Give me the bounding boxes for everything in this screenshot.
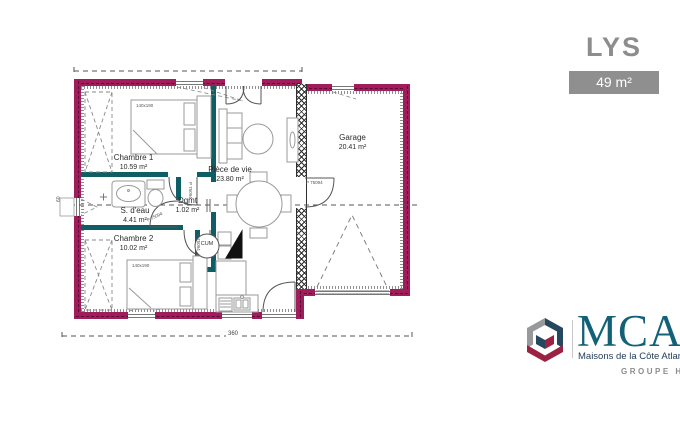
door-garage-house-opening	[295, 177, 306, 208]
window-sdeau	[74, 198, 81, 216]
insulation-garage-right	[400, 91, 403, 289]
room-name: Garage	[315, 133, 390, 143]
wall-chambre2-top-a	[81, 225, 183, 230]
page-canvas: LYS 49 m²	[0, 0, 680, 425]
washbasin	[112, 181, 145, 207]
garage-door	[316, 215, 389, 294]
window-chambre2	[128, 312, 155, 319]
dimension-lines	[62, 67, 418, 340]
door-ref-chambre2: P 75094	[196, 234, 201, 251]
logo-divider	[572, 320, 573, 358]
logo-tagline-text: Maisons de la Côte Atlantique	[578, 351, 680, 362]
window-chambre1	[176, 79, 203, 86]
bed-size-label-ch1: 140x190	[136, 103, 153, 108]
window-garage	[332, 84, 354, 91]
wall-garage-top	[302, 84, 410, 91]
door-ref-chambre1: P 75094	[188, 182, 193, 199]
insulation-garage-top	[305, 91, 403, 94]
room-label-garage: Garage 20.41 m²	[315, 133, 390, 152]
door-ref-garage: P 75094	[306, 180, 323, 185]
room-area: 10.59 m²	[96, 163, 171, 172]
toilet	[147, 180, 164, 207]
dimension-bottom: 360	[226, 331, 240, 337]
plan-title: LYS	[569, 32, 659, 63]
wall-chambre1-bottom-a	[81, 172, 168, 177]
room-area: 20.41 m²	[315, 143, 390, 152]
window-sill-box	[60, 198, 74, 216]
wall-kitchen	[211, 228, 216, 272]
window-swings	[81, 87, 356, 311]
room-label-piece-de-vie: Pièce de vie 23.80 m²	[190, 165, 270, 184]
wall-dgmt-living-b	[211, 212, 216, 228]
insulation-left	[81, 86, 84, 312]
mca-cube-icon	[521, 316, 569, 364]
coffee-table	[243, 124, 273, 154]
room-area: 4.41 m²	[100, 216, 170, 225]
window-kitchen	[222, 312, 252, 319]
dimension-left-window: 60	[56, 196, 62, 202]
room-area: 23.80 m²	[190, 175, 270, 184]
room-name: Chambre 2	[96, 234, 171, 244]
room-name: Chambre 1	[96, 153, 171, 163]
kitchen-counter	[216, 232, 258, 312]
technical-duct	[226, 231, 242, 258]
room-name: Pièce de vie	[190, 165, 270, 175]
room-area: 10.02 m²	[96, 244, 171, 253]
logo-brand-text: MCA	[577, 309, 680, 354]
door-living-rear	[263, 282, 295, 312]
wall-garage-right	[403, 84, 410, 296]
garage-door-opening	[315, 289, 390, 296]
room-area: 1.02 m²	[165, 206, 210, 215]
room-label-chambre2: Chambre 2 10.02 m²	[96, 234, 171, 253]
glazed-door-living	[262, 312, 296, 319]
area-badge: 49 m²	[569, 71, 659, 94]
sofa	[219, 109, 242, 163]
wall-chambre1-living	[211, 86, 216, 177]
bed-size-label-ch2: 140x190	[132, 263, 149, 268]
logo-group-text: GROUPE HEXAOM	[621, 367, 680, 376]
entry-door-opening	[225, 79, 262, 86]
wall-stub-bottom-right	[296, 289, 304, 319]
insulation-top	[81, 86, 296, 89]
room-label-chambre1: Chambre 1 10.59 m²	[96, 153, 171, 172]
floor-drain-icon	[100, 194, 107, 201]
